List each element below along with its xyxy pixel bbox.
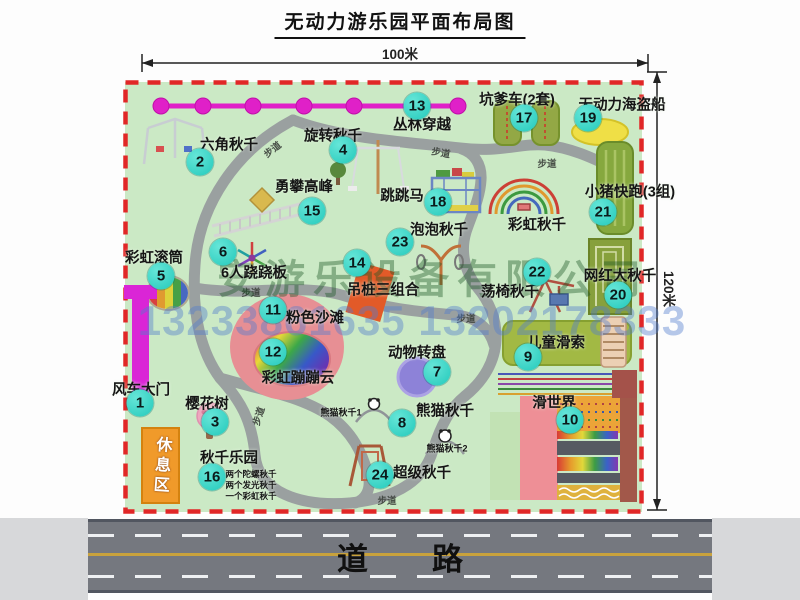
attraction-badge-19: 19	[575, 105, 602, 132]
page-title: 无动力游乐园平面布局图	[274, 7, 525, 39]
map-label: 熊猫秋千1	[320, 406, 361, 419]
footpath-label: 步道	[377, 493, 396, 507]
map-label: 彩虹秋千	[508, 214, 566, 235]
attraction-label-12: 彩虹蹦蹦云	[262, 367, 335, 388]
attraction-badge-18: 18	[425, 189, 452, 216]
attraction-label-24: 超级秋千	[393, 462, 451, 483]
attraction-label-11: 粉色沙滩	[286, 307, 344, 328]
park-map-graphic	[0, 0, 800, 600]
attraction-badge-15: 15	[299, 198, 326, 225]
attraction-badge-2: 2	[187, 149, 214, 176]
attraction-label-18: 跳跳马	[380, 185, 424, 206]
attraction-badge-7: 7	[424, 359, 451, 386]
attraction-badge-12: 12	[260, 339, 287, 366]
attraction-badge-3: 3	[202, 409, 229, 436]
attraction-badge-11: 11	[260, 297, 287, 324]
map-label: 熊猫秋千2	[426, 442, 467, 455]
footpath-label: 步道	[456, 311, 475, 325]
attraction-badge-5: 5	[148, 263, 175, 290]
attraction-badge-24: 24	[367, 462, 394, 489]
park-layout-screenshot: 无动力游乐园平面布局图 100米 120米	[0, 0, 800, 600]
map-label: 一个彩虹秋千	[225, 490, 276, 502]
rest-area-label: 休息区	[146, 435, 174, 497]
attraction-badge-21: 21	[590, 199, 617, 226]
footpath-label: 步道	[537, 156, 556, 170]
attraction-badge-13: 13	[404, 93, 431, 120]
attraction-label-14: 吊桩三组合	[347, 279, 420, 300]
attraction-badge-6: 6	[210, 239, 237, 266]
attraction-badge-14: 14	[344, 250, 371, 277]
attraction-label-15: 勇攀高峰	[275, 176, 333, 197]
attraction-badge-8: 8	[389, 410, 416, 437]
attraction-badge-17: 17	[511, 105, 538, 132]
height-dimension-label: 120米	[660, 271, 680, 307]
attraction-badge-16: 16	[199, 464, 226, 491]
slide-world-icon	[490, 370, 637, 502]
attraction-label-23: 泡泡秋千	[410, 219, 468, 240]
attraction-badge-10: 10	[557, 407, 584, 434]
width-dimension-label: 100米	[382, 43, 418, 63]
attraction-badge-20: 20	[605, 282, 632, 309]
attraction-badge-9: 9	[515, 344, 542, 371]
attraction-label-6: 6人跷跷板	[221, 262, 287, 283]
attraction-badge-4: 4	[330, 137, 357, 164]
attraction-badge-1: 1	[127, 390, 154, 417]
attraction-badge-23: 23	[387, 229, 414, 256]
footpath-label: 步道	[430, 143, 451, 160]
footpath-label: 步道	[241, 285, 260, 299]
attraction-label-8: 熊猫秋千	[416, 400, 474, 421]
attraction-badge-22: 22	[524, 259, 551, 286]
